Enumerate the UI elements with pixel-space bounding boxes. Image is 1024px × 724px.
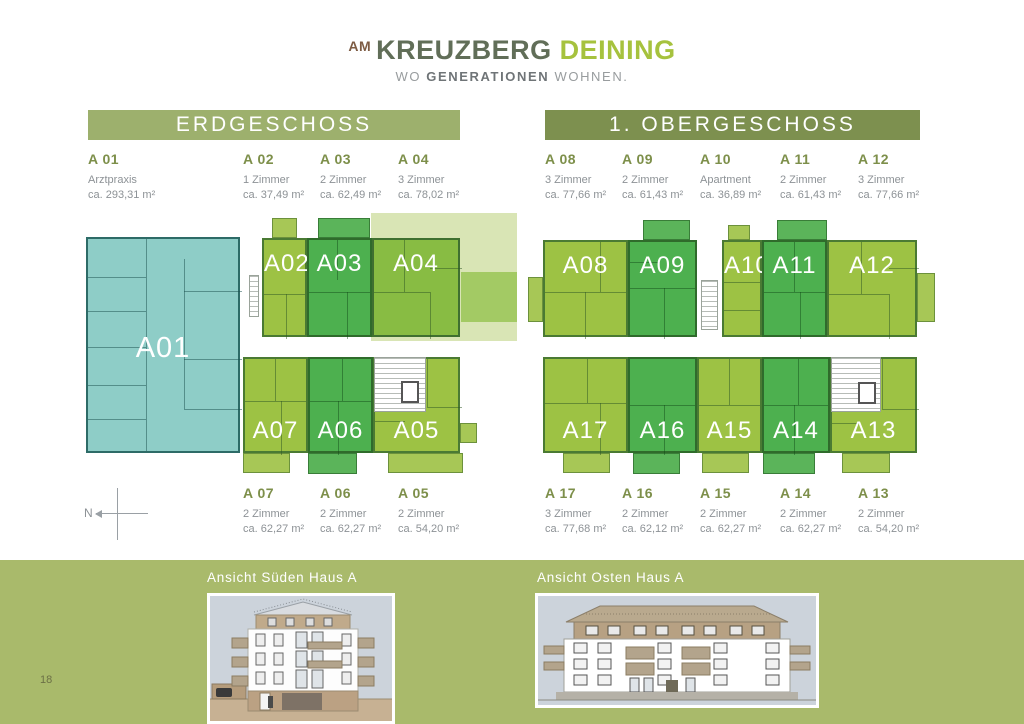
listing-id: A 06 [320,485,398,501]
terrace-a06 [308,453,357,474]
listing-id: A 01 [88,151,238,167]
listing-a09: A 09 2 Zimmer ca. 61,43 m² [622,151,700,203]
listing-area: ca. 54,20 m² [398,522,476,537]
plan-unit-label: A13 [832,417,915,445]
plan-unit-a12: A12 [827,240,917,337]
plan-unit-a07: A07 [243,357,308,453]
plan-unit-a06: A06 [308,357,373,453]
floorplan-obergeschoss: A08 A09 A10 A11 A12 [528,212,935,476]
plan-unit-label: A03 [309,250,370,278]
stairwell [831,357,881,412]
balcony-a16 [633,453,680,474]
listing-a02: A 02 1 Zimmer ca. 37,49 m² [243,151,321,203]
listing-type: 2 Zimmer [398,507,476,522]
plan-unit-a01: A01 [86,237,240,453]
listing-id: A 08 [545,151,623,167]
listing-type: Apartment [700,173,778,188]
listing-area: ca. 62,49 m² [320,188,398,203]
balcony-a17 [563,453,610,473]
listing-type: 2 Zimmer [243,507,321,522]
stairwell [374,357,426,412]
balcony-a12-side [917,273,935,322]
listing-type: 2 Zimmer [700,507,778,522]
listing-area: ca. 62,12 m² [622,522,700,537]
listing-id: A 12 [858,151,936,167]
listing-id: A 11 [780,151,858,167]
listing-id: A 07 [243,485,321,501]
plan-unit-label: A08 [545,252,626,280]
listing-type: 2 Zimmer [780,173,858,188]
listing-id: A 16 [622,485,700,501]
plan-unit-a17: A17 [543,357,628,453]
listing-type: 3 Zimmer [545,507,623,522]
balcony-a10 [728,225,750,240]
plan-unit-label: A15 [699,417,760,445]
listing-id: A 17 [545,485,623,501]
terrace-a05 [388,453,463,473]
listing-type: 2 Zimmer [320,507,398,522]
listing-id: A 04 [398,151,476,167]
brand-name: AMKREUZBERG DEINING [0,32,1024,64]
listing-a17: A 17 3 Zimmer ca. 77,68 m² [545,485,623,537]
listing-a10: A 10 Apartment ca. 36,89 m² [700,151,778,203]
listing-type: 3 Zimmer [545,173,623,188]
listing-a15: A 15 2 Zimmer ca. 62,27 m² [700,485,778,537]
listing-area: ca. 36,89 m² [700,188,778,203]
listing-type: 3 Zimmer [398,173,476,188]
listing-type: 2 Zimmer [858,507,936,522]
listing-area: ca. 62,27 m² [320,522,398,537]
plan-unit-a10: A10 [722,240,762,337]
caption-ansicht-sueden: Ansicht Süden Haus A [207,570,357,585]
listing-a06: A 06 2 Zimmer ca. 62,27 m² [320,485,398,537]
listing-id: A 09 [622,151,700,167]
terrace-a03 [318,218,370,238]
plan-unit-label: A06 [310,417,371,445]
elevation-east-drawing [538,596,816,705]
listing-area: ca. 62,27 m² [700,522,778,537]
tagline-bold: GENERATIONEN [426,69,549,84]
listing-a03: A 03 2 Zimmer ca. 62,49 m² [320,151,398,203]
listing-type: 2 Zimmer [622,173,700,188]
listing-id: A 13 [858,485,936,501]
listing-area: ca. 77,66 m² [858,188,936,203]
listing-id: A 03 [320,151,398,167]
plan-unit-label: A01 [88,332,238,365]
balcony-a11 [777,220,827,240]
stairwell-top [701,280,718,330]
plan-unit-a11: A11 [762,240,827,337]
plan-unit-label: A10 [724,252,760,280]
plan-unit-label: A07 [245,417,306,445]
plan-unit-label: A14 [764,417,828,445]
listing-area: ca. 77,66 m² [545,188,623,203]
elevation-south-image [207,593,395,724]
brand-tagline: WO GENERATIONEN WOHNEN. [0,69,1024,84]
plan-unit-a08: A08 [543,240,628,337]
plan-unit-label: A04 [374,250,458,278]
listing-id: A 14 [780,485,858,501]
plan-unit-label: A12 [829,252,915,280]
listing-type: 2 Zimmer [780,507,858,522]
plan-unit-a09: A09 [628,240,697,337]
plan-unit-a04: A04 [372,238,460,337]
brand-logo: AMKREUZBERG DEINING WO GENERATIONEN WOHN… [0,32,1024,84]
listing-a11: A 11 2 Zimmer ca. 61,43 m² [780,151,858,203]
tagline-tail: WOHNEN. [554,69,628,84]
listing-area: ca. 293,31 m² [88,188,238,203]
tagline-lead: WO [395,69,421,84]
listing-area: ca. 78,02 m² [398,188,476,203]
plan-unit-a14: A14 [762,357,830,453]
listing-area: ca. 61,43 m² [622,188,700,203]
garden-area [461,272,517,322]
balcony-a15 [702,453,749,473]
listing-a13: A 13 2 Zimmer ca. 54,20 m² [858,485,936,537]
listing-a14: A 14 2 Zimmer ca. 62,27 m² [780,485,858,537]
listing-area: ca. 77,68 m² [545,522,623,537]
title-obergeschoss: 1. OBERGESCHOSS [545,110,920,140]
brand-prefix: AM [348,38,371,54]
listing-id: A 10 [700,151,778,167]
listing-type: 3 Zimmer [858,173,936,188]
listing-a07: A 07 2 Zimmer ca. 62,27 m² [243,485,321,537]
floorplan-erdgeschoss: A01 A02 A03 A04 A07 [85,212,517,476]
footer-band [0,560,1024,724]
listing-a16: A 16 2 Zimmer ca. 62,12 m² [622,485,700,537]
listing-type: 2 Zimmer [622,507,700,522]
listing-a08: A 08 3 Zimmer ca. 77,66 m² [545,151,623,203]
listing-a04: A 04 3 Zimmer ca. 78,02 m² [398,151,476,203]
caption-ansicht-osten: Ansicht Osten Haus A [537,570,684,585]
plan-unit-a15: A15 [697,357,762,453]
balcony-a13 [842,453,890,473]
brand-name-dark: KREUZBERG [376,35,552,65]
terrace-a07 [243,453,290,473]
listing-a12: A 12 3 Zimmer ca. 77,66 m² [858,151,936,203]
listing-area: ca. 62,27 m² [243,522,321,537]
listing-id: A 02 [243,151,321,167]
elevator [401,381,419,403]
listing-type: Arztpraxis [88,173,238,188]
title-erdgeschoss: ERDGESCHOSS [88,110,460,140]
listing-area: ca. 61,43 m² [780,188,858,203]
listing-a05: A 05 2 Zimmer ca. 54,20 m² [398,485,476,537]
terrace-a02 [272,218,297,238]
entry-stairs [249,275,259,317]
balcony-a14 [763,453,815,474]
plan-unit-a03: A03 [307,238,372,337]
plan-unit-label: A02 [264,250,305,278]
terrace-a05-side [460,423,477,443]
brand-name-green: DEINING [560,35,676,65]
balcony-a09 [643,220,690,240]
listing-id: A 05 [398,485,476,501]
plan-unit-a02: A02 [262,238,307,337]
brochure-page: AMKREUZBERG DEINING WO GENERATIONEN WOHN… [0,0,1024,724]
north-compass-icon: N [84,486,148,544]
plan-unit-label: A05 [375,417,458,445]
plan-unit-label: A09 [630,252,695,280]
listing-a01: A 01 Arztpraxis ca. 293,31 m² [88,151,238,203]
elevation-east-image [535,593,819,708]
plan-unit-a16: A16 [628,357,697,453]
listing-type: 1 Zimmer [243,173,321,188]
balcony-a08-side [528,277,543,322]
listing-area: ca. 54,20 m² [858,522,936,537]
listing-area: ca. 37,49 m² [243,188,321,203]
plan-unit-label: A11 [764,252,825,280]
compass-north-label: N [84,506,93,520]
listing-id: A 15 [700,485,778,501]
elevation-south-drawing [210,596,392,721]
plan-unit-label: A16 [630,417,695,445]
plan-unit-label: A17 [545,417,626,445]
listing-area: ca. 62,27 m² [780,522,858,537]
listing-type: 2 Zimmer [320,173,398,188]
elevator [858,382,876,404]
page-number: 18 [40,674,52,686]
